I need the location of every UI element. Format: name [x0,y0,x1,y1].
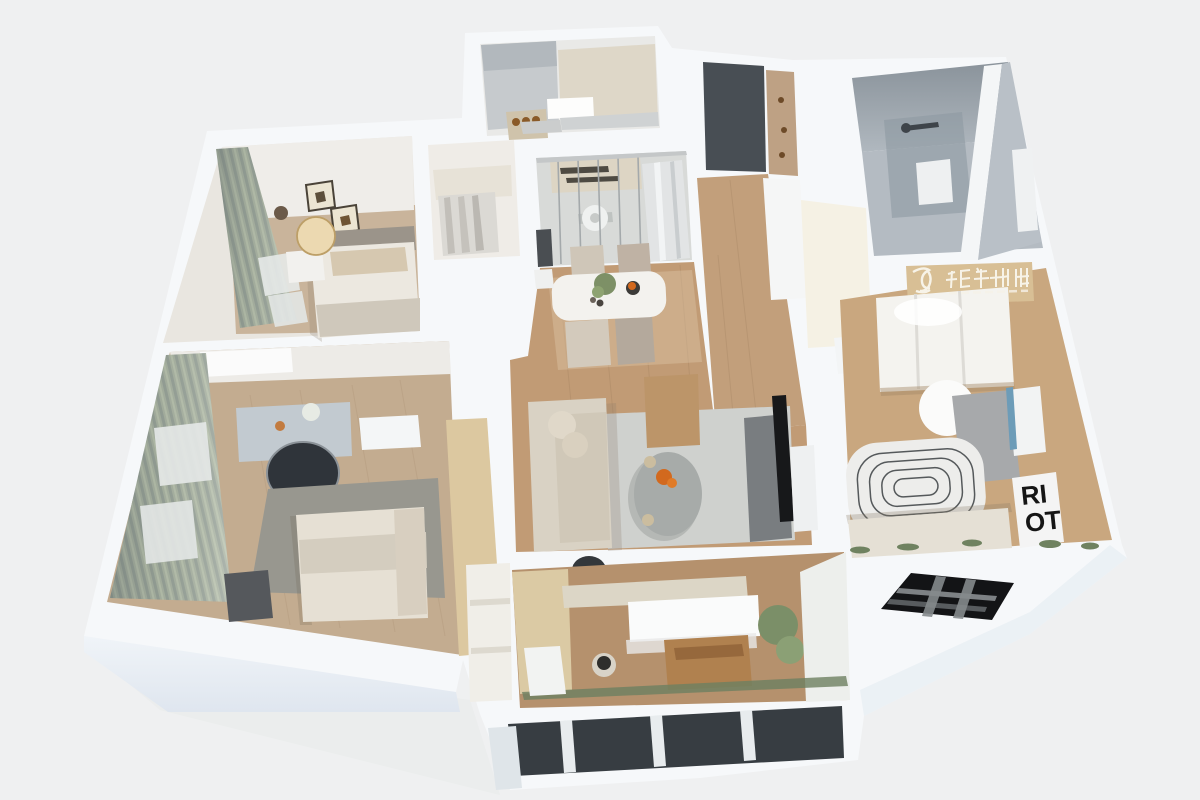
svg-text:OT: OT [1023,504,1062,538]
